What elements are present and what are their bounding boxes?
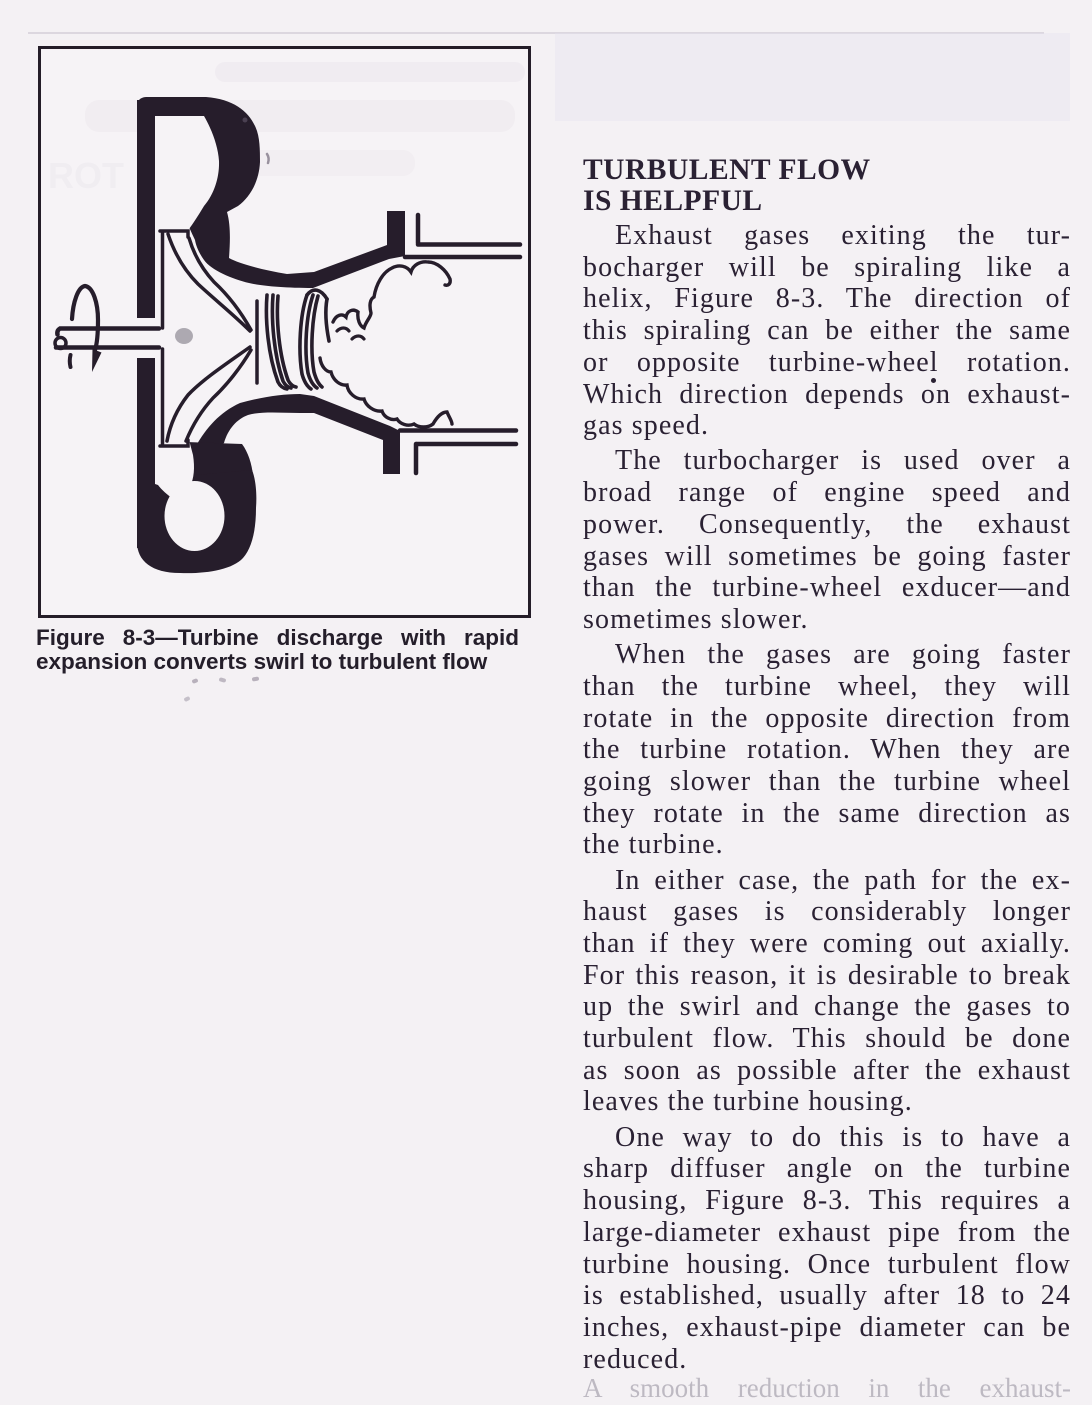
svg-text:ROT: ROT	[48, 155, 124, 196]
